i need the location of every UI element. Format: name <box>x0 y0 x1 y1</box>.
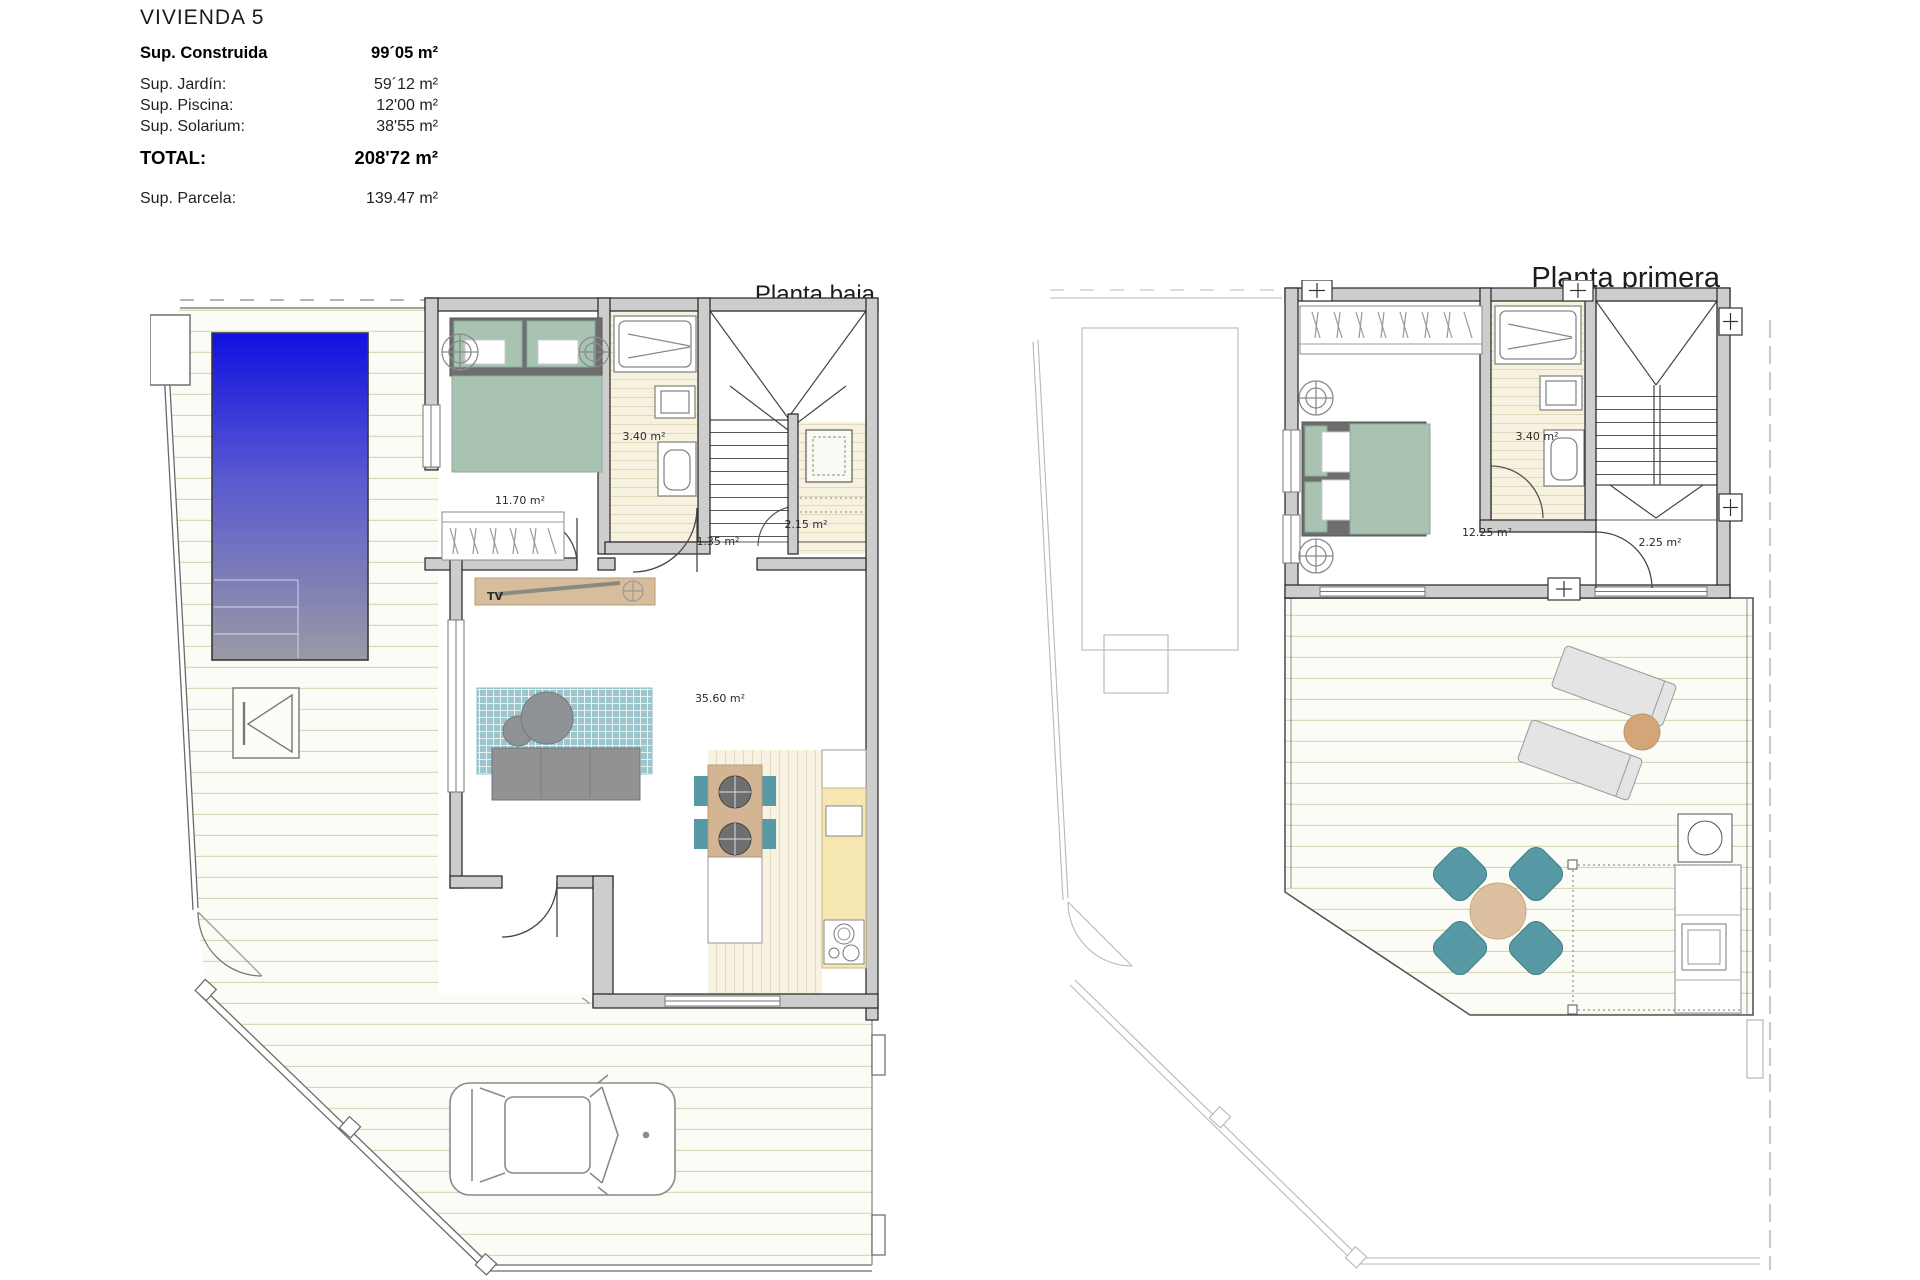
ceiling-light-icon <box>1299 539 1333 573</box>
terrace-step <box>1747 1020 1763 1078</box>
area-row-jardin: Sup. Jardín: 59´12 m² <box>140 76 438 94</box>
area-label: Sup. Solarium: <box>140 118 245 136</box>
area-value: 139.47 m² <box>366 190 438 208</box>
dining-chair <box>694 819 709 849</box>
dining-chair <box>761 819 776 849</box>
pendant-lamp-icon <box>719 823 751 855</box>
area-label: Sup. Parcela: <box>140 190 236 208</box>
kitchen-island <box>708 857 762 943</box>
side-table <box>1624 714 1660 750</box>
kitchen-sink <box>826 806 862 836</box>
outdoor-sink <box>1682 924 1726 970</box>
room-label-landing: 2.25 m² <box>1638 536 1681 549</box>
area-row-piscina: Sup. Piscina: 12'00 m² <box>140 97 438 115</box>
area-label: Sup. Piscina: <box>140 97 233 115</box>
sofa <box>492 748 640 800</box>
ceiling-light-icon <box>579 337 609 367</box>
area-value: 38'55 m² <box>376 118 438 136</box>
room-label-utility: 2.15 m² <box>784 518 827 531</box>
room-label-bedroom: 12.25 m² <box>1462 526 1512 539</box>
room-label-bathroom: 3.40 m² <box>622 430 665 443</box>
area-row-solarium: Sup. Solarium: 38'55 m² <box>140 118 438 136</box>
wardrobe <box>1300 306 1482 354</box>
garden-symbol <box>233 688 299 758</box>
kitchen-cabinet <box>822 750 866 788</box>
page-title: VIVIENDA 5 <box>140 6 264 30</box>
area-row-parcela: Sup. Parcela: 139.47 m² <box>140 190 438 208</box>
shower-tray <box>614 316 696 372</box>
dining-chair <box>694 776 709 806</box>
room-label-bathroom: 3.40 m² <box>1515 430 1558 443</box>
first-floor-plan: 3.40 m² 12.25 m² 2.25 m² <box>1020 280 1790 1280</box>
pillow <box>1322 480 1352 520</box>
ground-floor-plan: TV <box>150 290 905 1280</box>
floor-plan-sheet: VIVIENDA 5 Sup. Construida 99´05 m² Sup.… <box>0 0 1920 1280</box>
area-value: 12'00 m² <box>376 97 438 115</box>
ceiling-light-icon <box>1299 381 1333 415</box>
room-label-bedroom: 11.70 m² <box>495 494 545 507</box>
pillow <box>538 340 578 364</box>
shower-tray <box>1495 306 1581 364</box>
area-value: 99´05 m² <box>371 44 438 63</box>
wardrobe <box>442 512 564 560</box>
pillow <box>1322 432 1352 472</box>
area-label: Sup. Jardín: <box>140 76 226 94</box>
car <box>450 1075 675 1195</box>
ceiling-light-icon <box>442 334 478 370</box>
swimming-pool <box>212 333 368 660</box>
plot-corner-structure <box>150 315 190 385</box>
bed-duvet <box>1350 424 1430 534</box>
area-label: TOTAL: <box>140 147 206 169</box>
tv-label: TV <box>487 590 504 603</box>
area-row-total: TOTAL: 208'72 m² <box>140 147 438 169</box>
pendant-lamp-icon <box>719 776 751 808</box>
area-label: Sup. Construida <box>140 44 267 63</box>
bed-duvet <box>452 376 602 472</box>
ceiling-light-icon <box>623 581 643 601</box>
area-value: 208'72 m² <box>354 147 438 169</box>
area-value: 59´12 m² <box>374 76 438 94</box>
dining-chair <box>761 776 776 806</box>
terrace-table <box>1470 883 1526 939</box>
room-label-hall: 1.35 m² <box>696 535 739 548</box>
coffee-table <box>521 692 573 744</box>
room-label-living: 35.60 m² <box>695 692 745 705</box>
area-row-construida: Sup. Construida 99´05 m² <box>140 44 438 63</box>
